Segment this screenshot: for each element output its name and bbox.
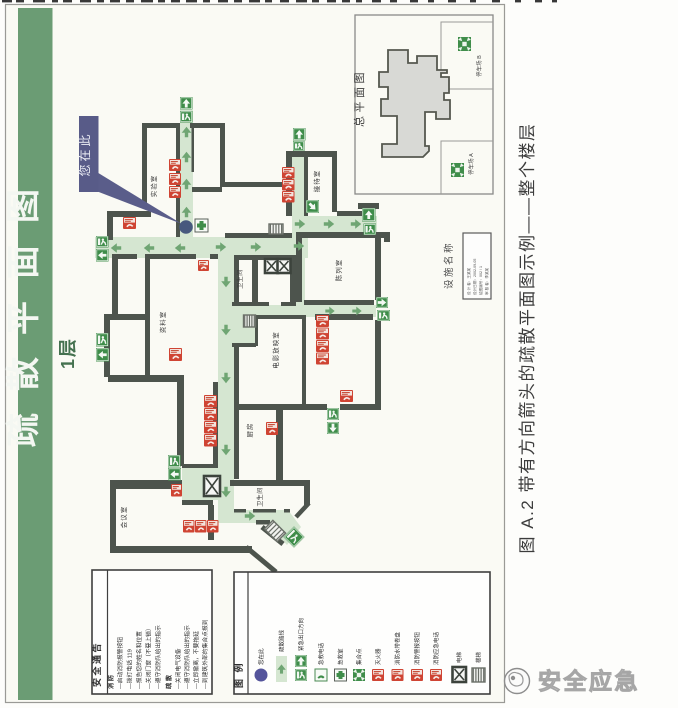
- svg-text:电影放映室: 电影放映室: [271, 331, 280, 369]
- svg-text:—遵守消防队给出的指示: —遵守消防队给出的指示: [183, 625, 191, 689]
- svg-text:—遵守消防队给出的指示: —遵守消防队给出的指示: [154, 625, 162, 689]
- svg-text:停车场 A: 停车场 A: [467, 153, 475, 175]
- svg-text:安全通告: 安全通告: [91, 641, 102, 687]
- svg-text:资料室: 资料室: [158, 311, 167, 334]
- svg-text:—关闭电气设备: —关闭电气设备: [174, 648, 182, 689]
- svg-text:急救室: 急救室: [337, 648, 345, 665]
- svg-text:实验室: 实验室: [149, 175, 158, 198]
- svg-text:图 A.2 带有方向箭头的疏散平面图示例——整个楼层: 图 A.2 带有方向箭头的疏散平面图示例——整个楼层: [518, 123, 537, 554]
- svg-text:消防水带卷盘: 消防水带卷盘: [394, 631, 402, 665]
- svg-text:疏散路线: 疏散路线: [278, 629, 286, 652]
- svg-text:您在此: 您在此: [257, 648, 265, 665]
- svg-text:1层: 1层: [58, 337, 78, 369]
- svg-text:设施名称: 设施名称: [443, 241, 455, 289]
- svg-text:疏 散: 疏 散: [165, 674, 173, 689]
- svg-text:—关闭门窗（不要上锁）: —关闭门窗（不要上锁）: [145, 625, 153, 689]
- svg-text:会议室: 会议室: [119, 506, 128, 529]
- svg-text:—拨打电话 119: —拨打电话 119: [126, 649, 134, 689]
- svg-text:绘图编号：002 / 1: 绘图编号：002 / 1: [478, 266, 483, 295]
- svg-text:卫生间: 卫生间: [256, 487, 264, 507]
- svg-text:—立即撤离，不要拖延: —立即撤离，不要拖延: [192, 631, 200, 689]
- svg-text:您在此: 您在此: [77, 131, 92, 176]
- svg-text:设计日期：2002-09-05: 设计日期：2002-09-05: [472, 259, 477, 295]
- svg-text:图 例: 图 例: [233, 661, 244, 688]
- svg-text:消防应急电话: 消防应急电话: [432, 631, 440, 665]
- svg-text:厨房: 厨房: [245, 423, 254, 438]
- svg-text:集合点: 集合点: [355, 648, 363, 665]
- svg-text:陈列室: 陈列室: [334, 259, 343, 282]
- svg-text:—报告您的姓名和位置: —报告您的姓名和位置: [135, 631, 143, 689]
- svg-text:—到建筑外部的集合点报到: —到建筑外部的集合点报到: [201, 619, 209, 689]
- svg-text:紧急出口方向: 紧急出口方向: [297, 618, 305, 651]
- svg-text:接待室: 接待室: [312, 170, 321, 193]
- svg-text:电梯: 电梯: [455, 651, 463, 663]
- svg-text:消 防: 消 防: [107, 674, 115, 689]
- svg-text:—启动消防报警按钮: —启动消防报警按钮: [116, 637, 124, 689]
- svg-text:灭火器: 灭火器: [375, 648, 382, 665]
- svg-text:审 核 者：李某某: 审 核 者：李某某: [484, 267, 489, 295]
- svg-text:停车场 B: 停车场 B: [475, 55, 483, 77]
- svg-text:急救电话: 急救电话: [317, 642, 325, 665]
- svg-text:卫生间: 卫生间: [236, 269, 244, 289]
- svg-text:总平面图: 总平面图: [352, 69, 366, 127]
- svg-text:楼梯: 楼梯: [475, 651, 483, 663]
- svg-text:疏散平面图: 疏散平面图: [5, 167, 43, 447]
- svg-text:安全应急: 安全应急: [538, 668, 640, 694]
- svg-text:消防警报按钮: 消防警报按钮: [413, 631, 421, 665]
- svg-text:设 计 者：王某某: 设 计 者：王某某: [466, 267, 471, 295]
